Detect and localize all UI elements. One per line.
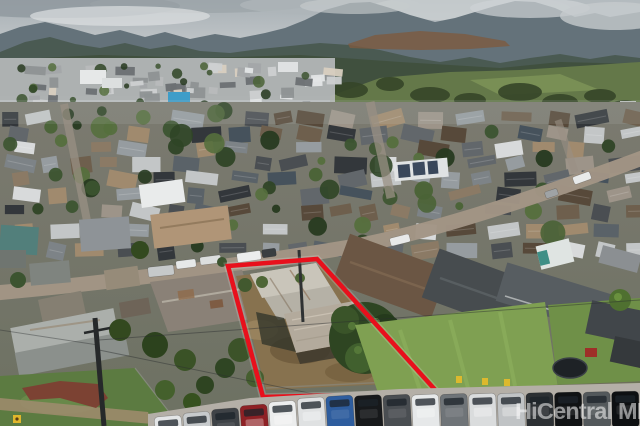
town-building	[49, 77, 58, 87]
car-windshield	[358, 399, 378, 407]
palm-tree-highlight	[614, 293, 622, 301]
town-tree	[17, 64, 25, 72]
tree-clump	[376, 77, 404, 91]
house-roof	[591, 203, 611, 222]
car-roof-highlight	[331, 409, 350, 419]
tree	[55, 134, 68, 147]
car-windshield	[415, 398, 435, 406]
parked-car	[383, 394, 412, 426]
tree-highlight	[354, 346, 362, 354]
tree	[602, 139, 615, 152]
cloud	[30, 6, 210, 26]
haze	[0, 100, 640, 124]
tree	[485, 125, 499, 139]
white-building	[278, 62, 298, 72]
tree	[155, 380, 175, 400]
parked-car	[183, 411, 213, 426]
tree	[309, 168, 323, 182]
town-tree	[29, 85, 38, 94]
car-roof-highlight	[274, 415, 293, 425]
car-roof-highlight	[245, 418, 264, 426]
town-tree	[155, 63, 160, 68]
tree	[131, 241, 149, 259]
house-roof	[91, 142, 111, 152]
tree	[215, 358, 235, 378]
house-roof	[127, 126, 150, 144]
town-building	[49, 87, 57, 95]
parked-car	[240, 404, 270, 426]
tree	[387, 136, 399, 148]
house-roof	[48, 187, 68, 204]
tree	[317, 157, 325, 165]
car-roof-highlight	[302, 411, 321, 421]
house-roof	[296, 142, 321, 153]
tree	[238, 278, 252, 292]
car-roof-highlight	[417, 408, 435, 418]
fence-sign	[482, 378, 488, 385]
town-tree	[172, 68, 182, 78]
tree	[455, 202, 463, 210]
tree	[255, 188, 268, 201]
tree	[204, 133, 224, 153]
town-building	[86, 88, 97, 95]
parked-car	[326, 395, 355, 426]
parked-car	[262, 248, 277, 258]
town-building	[311, 74, 325, 82]
parked-car	[469, 393, 497, 426]
tree	[3, 137, 17, 151]
aerial-photo: HiCentral MLS	[0, 0, 640, 426]
car-roof-highlight	[388, 408, 406, 418]
gray-two-story-house	[79, 216, 131, 251]
tree	[418, 194, 437, 213]
house-roof	[556, 204, 579, 219]
town-tree	[180, 78, 187, 85]
town-tree	[200, 62, 208, 70]
town-building	[245, 67, 254, 73]
fence-sign	[456, 376, 462, 383]
car-roof-highlight	[360, 409, 378, 419]
parked-car	[154, 415, 184, 426]
caution-sign-mark	[15, 417, 18, 420]
town-building	[209, 87, 218, 94]
fence-sign	[504, 379, 510, 386]
aerial-photo-canvas: HiCentral MLS	[0, 0, 640, 426]
tree	[49, 168, 63, 182]
tree	[345, 138, 357, 150]
watermark: HiCentral MLS	[515, 398, 640, 424]
tree	[32, 203, 43, 214]
car-body	[297, 397, 326, 426]
trampoline	[553, 358, 587, 378]
tree	[85, 181, 100, 196]
car-windshield	[244, 408, 264, 416]
tree	[320, 180, 340, 200]
car-windshield	[301, 401, 321, 409]
town-building	[220, 82, 236, 88]
town-tree	[302, 72, 310, 80]
car-windshield	[472, 397, 492, 405]
car-windshield	[329, 399, 349, 407]
tree	[331, 306, 359, 334]
parked-car	[411, 394, 440, 426]
parked-car	[211, 408, 241, 426]
car-windshield	[272, 405, 292, 413]
town-tree	[261, 89, 271, 99]
tree	[256, 276, 268, 288]
tree	[66, 200, 79, 213]
tree	[260, 131, 279, 150]
car-windshield	[387, 398, 407, 406]
red-structure	[585, 348, 597, 357]
parked-car	[268, 400, 297, 426]
town-tree	[253, 76, 265, 88]
house-roof	[441, 126, 467, 144]
town-building	[29, 95, 40, 100]
white-building	[102, 78, 122, 88]
town-building	[148, 71, 160, 81]
tree	[10, 272, 26, 288]
parked-car	[297, 397, 326, 426]
town-tree	[207, 70, 213, 76]
town-building	[24, 66, 46, 76]
tree	[138, 170, 152, 184]
tree	[536, 150, 553, 167]
tree-highlight	[348, 322, 356, 330]
house-roof	[100, 157, 117, 167]
tree	[308, 217, 327, 236]
car-windshield	[444, 398, 464, 406]
house-roof	[173, 156, 200, 174]
town-tree	[121, 63, 128, 70]
parked-car	[440, 393, 469, 426]
tree	[272, 205, 280, 213]
town-tree	[48, 63, 56, 71]
house-roof	[5, 205, 24, 214]
town-building	[281, 88, 294, 99]
town-building	[327, 77, 342, 85]
left-foreground-roof	[0, 250, 26, 268]
house-roof	[228, 126, 251, 143]
car-roof-highlight	[474, 407, 492, 417]
house-roof	[594, 224, 619, 238]
town-building	[268, 67, 277, 77]
town-tree	[124, 83, 129, 88]
house-roof	[50, 223, 79, 239]
house-roof	[101, 204, 122, 218]
tree	[354, 217, 371, 234]
tree-clump	[498, 83, 542, 101]
parked-car	[354, 395, 383, 426]
tree	[196, 376, 214, 394]
house-roof	[12, 171, 30, 187]
car-roof-highlight	[445, 408, 463, 418]
tree	[170, 124, 193, 147]
left-foreground-roof	[29, 260, 71, 285]
